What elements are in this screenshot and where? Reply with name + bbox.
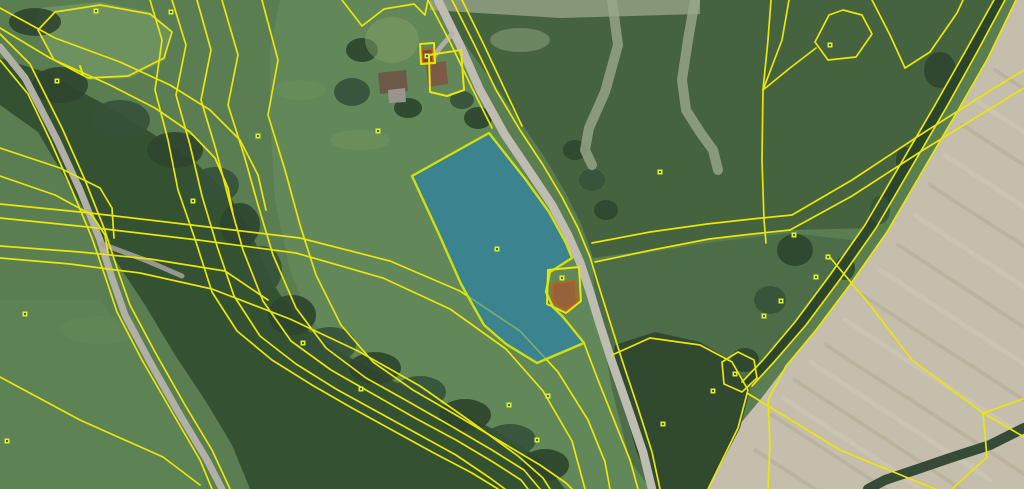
parcel-point-marker-core (426, 55, 428, 57)
map-canvas[interactable] (0, 0, 1024, 489)
forest-blob (90, 100, 150, 140)
forest-blob (394, 376, 446, 408)
parcel-point-marker-core (827, 256, 829, 258)
parcel-point-marker-core (662, 423, 664, 425)
parcel-point-marker-core (24, 313, 26, 315)
forest-blob (268, 295, 316, 335)
parcel-point-marker-core (712, 390, 714, 392)
parcel-point-marker-core (95, 10, 97, 12)
parcel-point-marker-core (763, 315, 765, 317)
map-viewport (0, 0, 1024, 489)
parcel-point-marker-core (547, 395, 549, 397)
building-shed (388, 88, 406, 103)
forest-blob (579, 169, 605, 191)
parcel-point-marker-core (659, 171, 661, 173)
parcel-point-marker-core (508, 404, 510, 406)
forest-blob (334, 78, 370, 106)
light-patch (274, 80, 326, 100)
parcel-point-marker-core (56, 80, 58, 82)
light-patch (365, 17, 419, 63)
parcel-point-marker-core (360, 388, 362, 390)
parcel-point-marker-core (302, 342, 304, 344)
forest-blob (9, 8, 61, 36)
light-patch (330, 130, 390, 150)
forest-blob (191, 167, 239, 203)
parcel-point-marker-core (734, 373, 736, 375)
light-patch (490, 28, 550, 52)
parcel-point-marker-core (793, 234, 795, 236)
parcel-point-marker-core (815, 276, 817, 278)
parcel-point-marker-core (536, 439, 538, 441)
parcel-point-marker-core (170, 11, 172, 13)
forest-blob (594, 200, 618, 220)
forest-blob (349, 352, 401, 384)
forest-blob (777, 234, 813, 266)
parcel-point-marker-core (377, 130, 379, 132)
parcel-point-marker-core (496, 248, 498, 250)
parcel-point-marker-core (561, 277, 563, 279)
parcel-point-marker-core (192, 200, 194, 202)
forest-blob (924, 52, 956, 88)
parcel-point-marker-core (829, 44, 831, 46)
parcel-point-marker-core (780, 300, 782, 302)
parcel-point-marker-core (6, 440, 8, 442)
parcel-point-marker-core (257, 135, 259, 137)
